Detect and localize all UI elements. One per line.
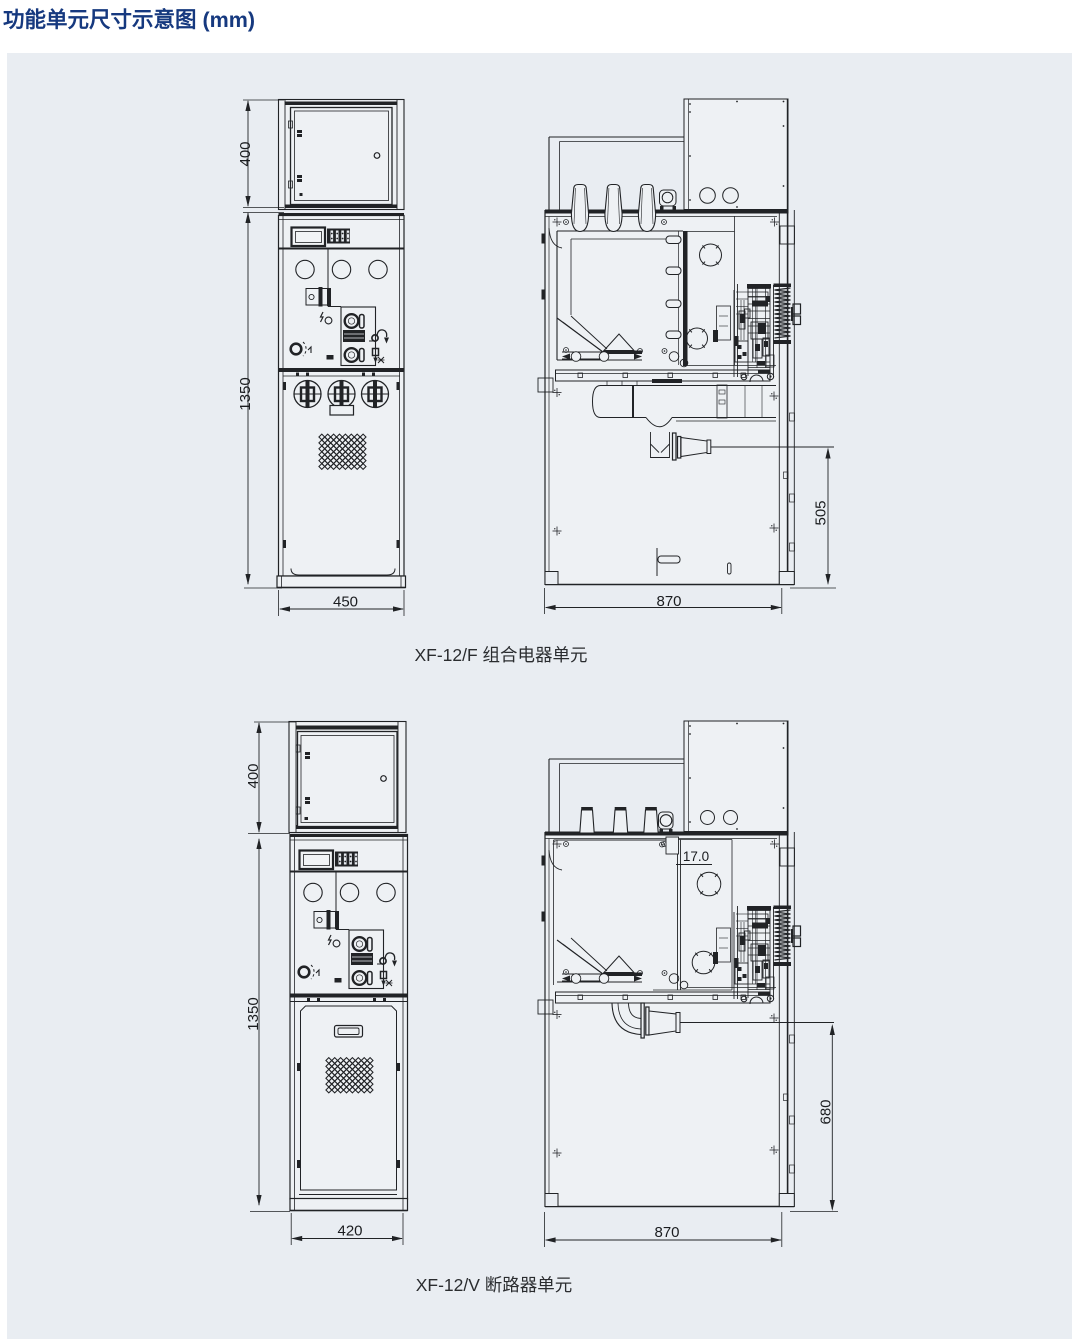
svg-text:870: 870	[654, 1224, 679, 1241]
svg-text:XF-12/F 组合电器单元: XF-12/F 组合电器单元	[414, 645, 587, 665]
svg-text:400: 400	[237, 141, 254, 166]
svg-text:505: 505	[813, 500, 830, 525]
svg-text:功能单元尺寸示意图 (mm): 功能单元尺寸示意图 (mm)	[3, 7, 255, 32]
svg-text:1350: 1350	[237, 377, 254, 410]
svg-text:17.0: 17.0	[683, 849, 709, 864]
svg-text:400: 400	[245, 763, 262, 788]
svg-text:420: 420	[337, 1223, 362, 1240]
svg-text:870: 870	[656, 593, 681, 610]
svg-text:680: 680	[818, 1099, 835, 1124]
svg-text:XF-12/V 断路器单元: XF-12/V 断路器单元	[416, 1275, 573, 1295]
svg-text:1350: 1350	[245, 997, 262, 1030]
svg-text:450: 450	[333, 594, 358, 611]
